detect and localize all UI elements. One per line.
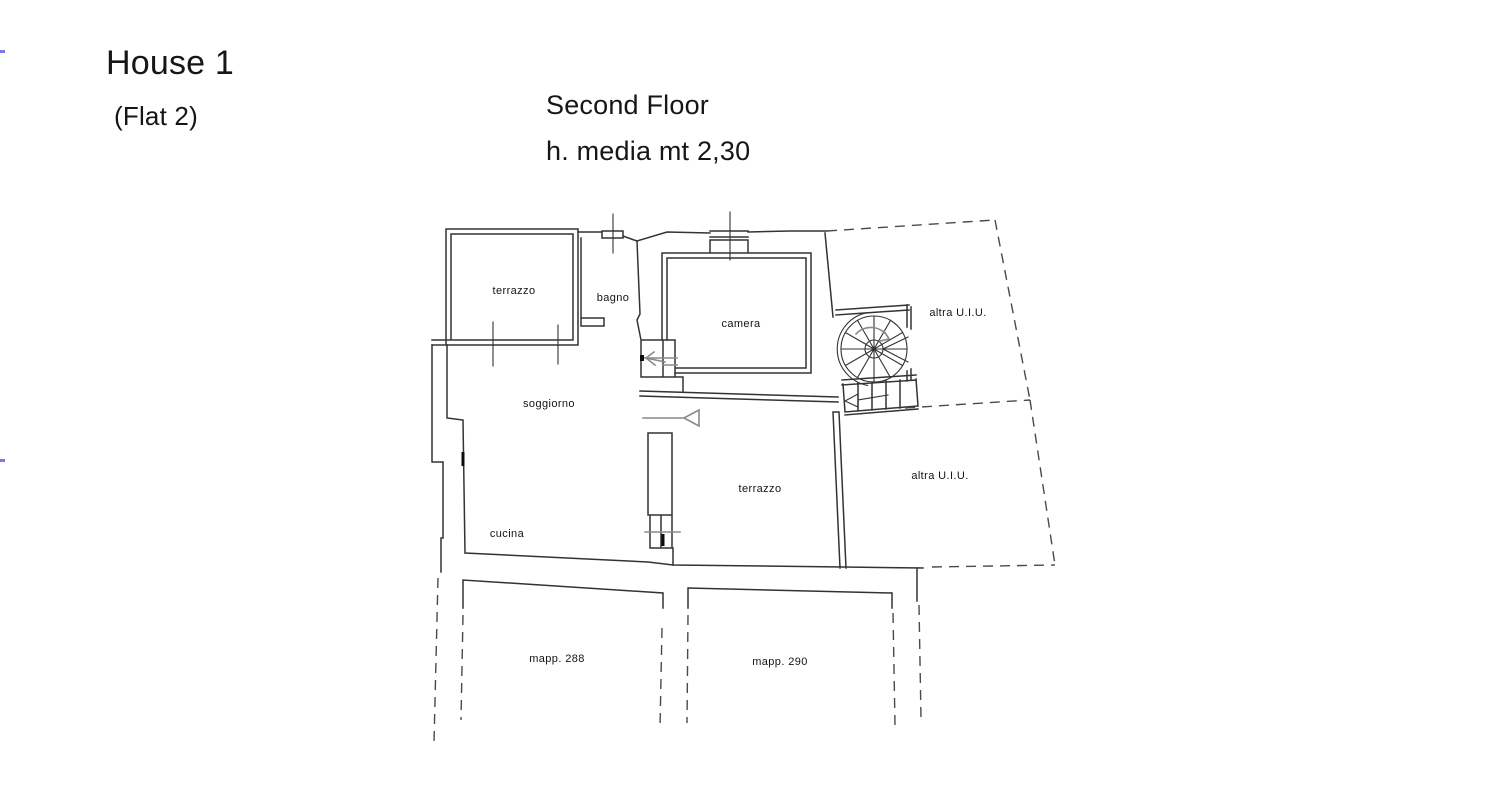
bedroom-walls	[662, 240, 811, 373]
room-label-living-room: soggiorno	[523, 398, 575, 410]
stair-arrow-head	[845, 394, 858, 407]
floor-plan-page: House 1 (Flat 2) Second Floor h. media m…	[0, 0, 1506, 808]
room-label-terrace-top: terrazzo	[493, 285, 536, 297]
label-parcel-288: mapp. 288	[529, 653, 585, 665]
parcel-outlines	[463, 568, 917, 608]
room-label-terrace-mid: terrazzo	[739, 483, 782, 495]
room-label-kitchen: cucina	[490, 528, 525, 540]
room-label-bedroom: camera	[721, 318, 761, 330]
terrace-east-wall	[833, 412, 846, 568]
label-other-unit-upper: altra U.I.U.	[929, 307, 986, 319]
room-labels: terrazzo bagno camera soggiorno cucina t…	[490, 285, 987, 668]
pillar-and-french-window	[645, 433, 680, 565]
bedroom-south-wall	[640, 391, 838, 402]
spiral-staircase	[836, 305, 916, 385]
northeast-boundary-wall	[825, 233, 833, 317]
terrace-top-left-walls	[432, 229, 578, 366]
label-parcel-290: mapp. 290	[752, 656, 808, 668]
room-label-bathroom: bagno	[597, 292, 630, 304]
floor-plan-drawing: terrazzo bagno camera soggiorno cucina t…	[0, 0, 1506, 808]
label-other-unit-lower: altra U.I.U.	[911, 470, 968, 482]
bathroom-walls	[581, 238, 604, 326]
entrance-direction-arrow	[643, 410, 699, 426]
